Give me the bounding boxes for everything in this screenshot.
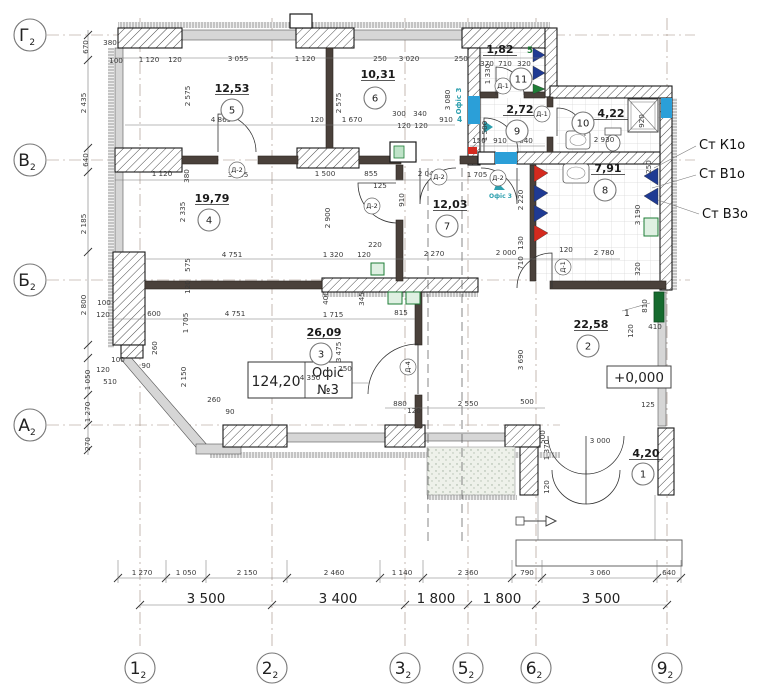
dim-text: 1 120 — [139, 55, 160, 64]
riser-label: Ст К1о — [699, 138, 745, 153]
dim-text: 90 — [225, 407, 235, 416]
room-area-label: 1,82 — [486, 43, 513, 56]
dim-text: 920 — [637, 114, 646, 128]
red-marker — [468, 147, 477, 154]
dim-text: 4 751 — [222, 250, 243, 259]
door-tag-label: Д-2 — [366, 202, 378, 210]
dim-text: 1 120 — [295, 54, 316, 63]
dim-text: 2 270 — [424, 249, 445, 258]
dim-text: 120 — [397, 121, 411, 130]
dim-text: 1 270 — [132, 568, 153, 577]
blue-wall-segment-1 — [468, 96, 480, 124]
window-bay-diagonal — [120, 354, 208, 452]
dim-text: 380 — [103, 38, 117, 47]
dim-text: 2 335 — [178, 202, 187, 223]
dim-text: 380 — [182, 169, 191, 183]
dim-text: 320 — [517, 59, 531, 68]
dim-text: 3 500 — [582, 591, 621, 607]
window-north-1 — [182, 30, 296, 40]
dim-text: 3 020 — [399, 54, 420, 63]
dim-text: 120 — [542, 480, 551, 494]
room-number: 1 — [640, 470, 646, 481]
dim-text: 1 705 — [467, 170, 488, 179]
room-number: 9 — [514, 127, 520, 138]
room-number: 5 — [229, 106, 235, 117]
dim-text: 120 — [407, 406, 421, 415]
dim-text: 320 — [633, 262, 642, 276]
dim-text: 1 050 — [176, 568, 197, 577]
room-number: 2 — [585, 342, 591, 353]
dim-text: 500 — [520, 397, 534, 406]
dim-text: 3 400 — [319, 591, 358, 607]
dim-text: 910 — [493, 136, 507, 145]
dim-text: 260 — [207, 395, 221, 404]
window-office-tag-small: Офіс 3 — [489, 193, 512, 200]
dim-text: 2 150 — [179, 366, 188, 387]
dim-text: 3 500 — [187, 591, 226, 607]
door-tag-label: Д-1 — [559, 261, 567, 273]
dim-text: 3 060 — [590, 568, 611, 577]
door-tag-label: Д-2 — [231, 166, 243, 174]
dim-text: 2 575 — [183, 86, 192, 107]
window-north-2 — [354, 30, 462, 40]
dim-text: 640 — [81, 153, 90, 167]
room-area-label: 4,22 — [597, 107, 624, 120]
dim-text: 575 — [183, 258, 192, 272]
room-area-label: 22,58 — [574, 318, 609, 331]
dim-text: 910 — [397, 193, 406, 207]
dim-text: 1 800 — [483, 591, 522, 607]
dim-text: 1 140 — [392, 568, 413, 577]
dim-text: 2 185 — [79, 214, 88, 235]
dim-text: 4 751 — [225, 309, 246, 318]
room-number: 4 — [206, 216, 212, 227]
dim-text: 600 — [147, 309, 161, 318]
room-number: 10 — [577, 119, 590, 130]
dim-text: 3 080 — [443, 89, 452, 110]
dim-text: 90 — [141, 361, 151, 370]
sink-room8 — [563, 164, 589, 183]
room-area-label: 4,20 — [632, 447, 659, 460]
elevation-value: +0,000 — [614, 370, 664, 386]
dim-text: 910 — [439, 115, 453, 124]
dim-text: 300 — [392, 109, 406, 118]
dim-text: 120 — [168, 55, 182, 64]
dim-text: 1 800 — [417, 591, 456, 607]
dim-text: 2 800 — [79, 294, 88, 315]
room-area-label: 2,72 — [506, 103, 533, 116]
window-west-lower — [115, 172, 123, 252]
dim-text: 790 — [520, 568, 534, 577]
door-tag-label: Д-2 — [492, 174, 504, 182]
room-area-label: 10,31 — [361, 68, 396, 81]
dim-text: 100 — [97, 298, 111, 307]
room-area-label: 19,79 — [195, 192, 230, 205]
dim-text: 100 — [111, 355, 125, 364]
room-number: 8 — [602, 186, 608, 197]
window-office-tag-vertical: Офіс 3 — [455, 88, 463, 115]
dim-text: 3 000 — [590, 436, 611, 445]
dim-text: 125 — [641, 400, 655, 409]
floor-plan-drawing: 124,20 Офіс №3 +0,000 5 Офіс 3 4 Офіс 3 … — [0, 0, 761, 699]
dim-text: 815 — [394, 308, 408, 317]
dim-text: 640 — [662, 568, 676, 577]
dim-text: 2 460 — [324, 568, 345, 577]
entry-direction-arrow-icon — [546, 516, 556, 526]
dim-text: 150 — [472, 136, 486, 145]
room-number: 6 — [372, 94, 378, 105]
dim-text: 120 — [559, 245, 573, 254]
door-tag-label: Д-2 — [433, 173, 445, 181]
vent-tag-1: 1 — [624, 309, 630, 319]
room-area-label: 26,09 — [307, 326, 342, 339]
dim-text: 810 — [640, 299, 649, 313]
blue-wall-segment-3 — [661, 98, 672, 118]
dim-text: 125 — [373, 181, 387, 190]
dim-text: 1 670 — [342, 115, 363, 124]
office-name-line2: №3 — [317, 383, 339, 398]
teal-tag-4: 4 — [457, 115, 462, 124]
dim-text: 250 — [373, 54, 387, 63]
dim-text: 400 — [321, 291, 330, 305]
dim-text: 1 320 — [323, 250, 344, 259]
dim-text: 670 — [81, 40, 90, 54]
dim-text: 3 690 — [516, 349, 525, 370]
dim-text: 3 475 — [334, 342, 343, 363]
dim-text: 1 715 — [323, 310, 344, 319]
room-area-label: 12,53 — [215, 82, 250, 95]
dim-text: 120 — [414, 121, 428, 130]
dim-text: 120 — [96, 365, 110, 374]
dim-text: 1 120 — [152, 169, 173, 178]
porch-slab — [427, 447, 515, 495]
elevation-mark: +0,000 — [607, 366, 671, 388]
dim-text: 4 350 — [300, 373, 321, 382]
dim-text: 2 900 — [323, 207, 332, 228]
window-south-2 — [425, 433, 505, 441]
dim-text: 340 — [413, 109, 427, 118]
room-number: 11 — [515, 75, 528, 86]
door-tag-label: Д-4 — [404, 361, 412, 373]
dim-text: 2 220 — [516, 189, 525, 210]
dim-text: 500 — [538, 430, 547, 444]
dim-text: 1 330 — [483, 63, 492, 84]
door-tag-label: Д-1 — [536, 110, 548, 118]
dim-text: 1 705 — [181, 313, 190, 334]
dim-text: 2 360 — [458, 568, 479, 577]
door-entry-outer-right — [586, 470, 620, 504]
dim-text: 2 150 — [237, 568, 258, 577]
roof-duct-box — [290, 14, 312, 28]
dim-text: 130 — [516, 236, 525, 250]
dim-text: 120 — [357, 250, 371, 259]
dim-text: 3 055 — [228, 54, 249, 63]
room-number: 7 — [444, 222, 450, 233]
dim-text: 120 — [183, 280, 192, 294]
riser-label: Ст В3о — [702, 207, 748, 222]
dim-text: 510 — [103, 377, 117, 386]
blue-wall-segment-2 — [495, 152, 517, 164]
dim-text: 2 780 — [594, 248, 615, 257]
dim-text: 1 050 — [83, 369, 92, 390]
corridor-vent — [394, 146, 404, 158]
dim-text: 855 — [364, 169, 378, 178]
riser-label: Ст В1о — [699, 167, 745, 182]
dim-text: 120 — [96, 310, 110, 319]
dim-text: 2 550 — [458, 399, 479, 408]
room-area-label: 7,91 — [594, 162, 621, 175]
dim-text: 710 — [516, 256, 525, 270]
office-area-value: 124,20 — [252, 374, 301, 390]
dim-text: 270 — [83, 437, 92, 451]
dim-text: 250 — [338, 364, 352, 373]
room-number: 3 — [318, 350, 324, 361]
dim-text: 250 — [644, 160, 653, 174]
dim-text: 410 — [648, 322, 662, 331]
dim-text: 100 — [109, 56, 123, 65]
dim-text: 880 — [393, 399, 407, 408]
dim-text: 250 — [454, 54, 468, 63]
dim-text: 1 270 — [83, 401, 92, 422]
dim-text: 2 435 — [79, 93, 88, 114]
door-tag-label: Д-1 — [497, 82, 509, 90]
dim-text: 345 — [357, 292, 366, 306]
dim-text: 120 — [310, 115, 324, 124]
room-area-label: 12,03 — [433, 198, 468, 211]
dim-text: 120 — [626, 324, 635, 338]
dim-text: 3 190 — [633, 204, 642, 225]
riser-labels: Ст К1оСт В1оСт В3о — [699, 138, 748, 222]
dim-text: 220 — [368, 240, 382, 249]
dim-text: 2 000 — [496, 248, 517, 257]
dim-text: 2 575 — [334, 93, 343, 114]
dim-text: 2 930 — [594, 135, 615, 144]
dim-text: 710 — [498, 59, 512, 68]
dim-text: 1 500 — [315, 169, 336, 178]
green-tag-5: 5 — [527, 46, 533, 56]
entry-arrow-base — [516, 517, 524, 525]
door-entry-outer-left — [552, 470, 586, 504]
dim-text: 260 — [150, 341, 159, 355]
